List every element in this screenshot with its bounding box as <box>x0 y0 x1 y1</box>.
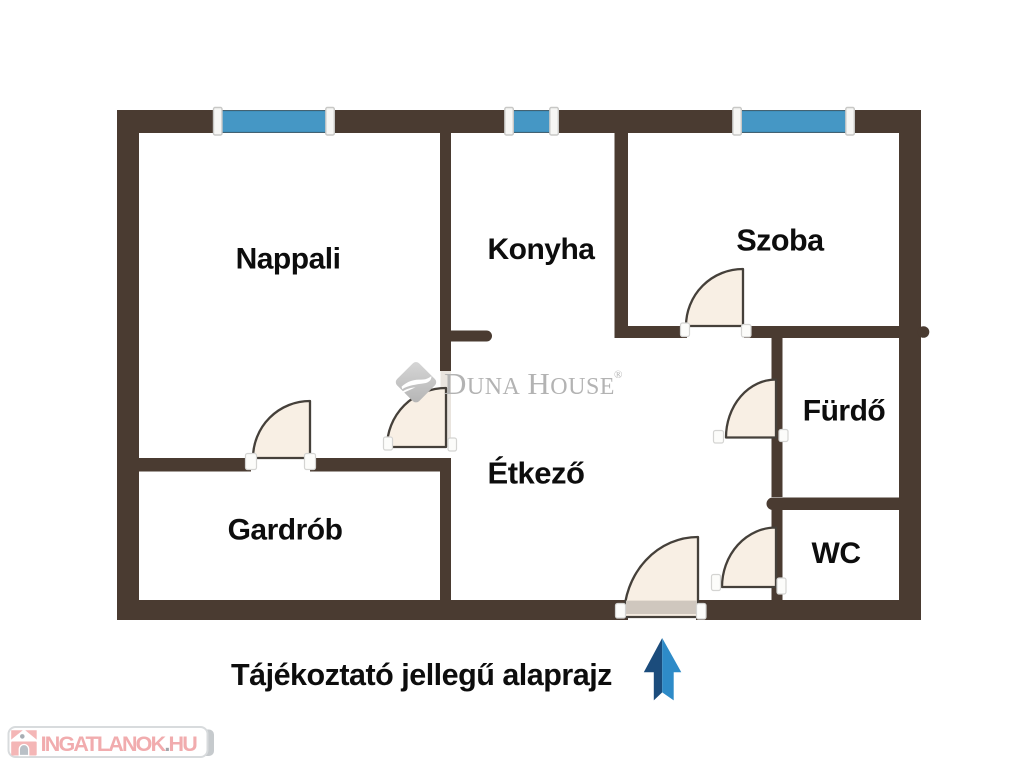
svg-text:Étkező: Étkező <box>488 456 585 491</box>
svg-text:Fürdő: Fürdő <box>803 395 886 428</box>
svg-text:Nappali: Nappali <box>236 243 341 276</box>
svg-text:Gardrób: Gardrób <box>228 514 343 547</box>
svg-text:®: ® <box>614 369 622 381</box>
svg-text:WC: WC <box>812 537 861 570</box>
svg-text:INGATLANOK.HU: INGATLANOK.HU <box>41 732 198 756</box>
svg-text:Tájékoztató jellegű alaprajz: Tájékoztató jellegű alaprajz <box>231 658 612 692</box>
svg-text:Konyha: Konyha <box>487 233 595 266</box>
svg-text:Szoba: Szoba <box>736 224 825 258</box>
